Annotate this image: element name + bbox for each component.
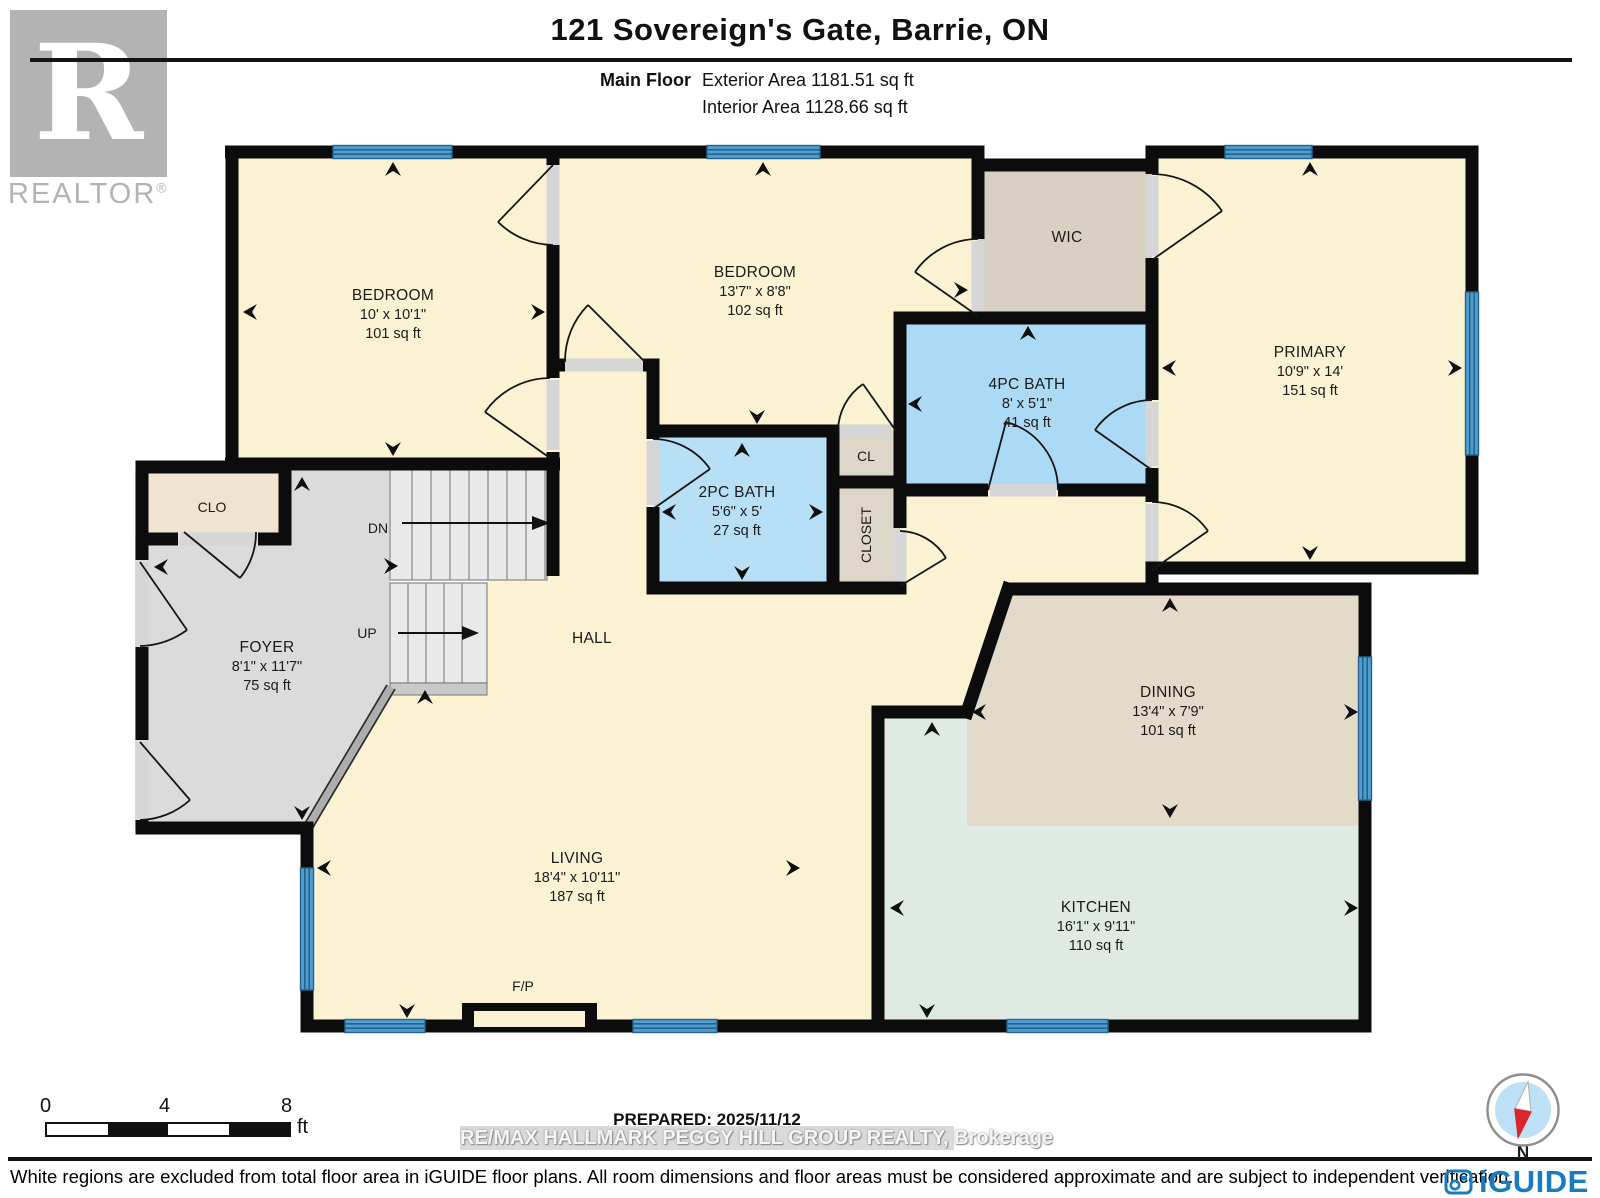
bedroom2-label: BEDROOM <box>714 264 796 281</box>
scale-unit: ft <box>297 1116 308 1139</box>
wic-label: WIC <box>1051 229 1082 246</box>
clo-label: CLO <box>198 499 227 515</box>
floorplan-drawing: BEDROOM 10' x 10'1" 101 sq ft BEDROOM 13… <box>0 0 1600 1060</box>
scale-tick-4: 4 <box>159 1095 170 1118</box>
bath2-label: 2PC BATH <box>698 484 775 501</box>
fireplace <box>462 1003 597 1027</box>
scale-segment <box>47 1124 108 1135</box>
scale-segment <box>108 1124 169 1135</box>
brokerage-watermark: RE/MAX HALLMARK PEGGY HILL GROUP REALTY,… <box>460 1126 954 1150</box>
realtor-logo-letter: R <box>34 28 144 160</box>
living-area: 187 sq ft <box>549 889 605 905</box>
bedroom1-label: BEDROOM <box>352 287 434 304</box>
bedroom1-area: 101 sq ft <box>365 326 421 342</box>
dining-area: 101 sq ft <box>1140 723 1196 739</box>
bedroom1-dims: 10' x 10'1" <box>360 307 426 323</box>
bedroom2-area: 102 sq ft <box>727 303 783 319</box>
scale-segment <box>229 1124 290 1135</box>
scale-segment <box>168 1124 229 1135</box>
iguide-wordmark: iGUIDE <box>1479 1164 1589 1198</box>
primary-dims: 10'9" x 14' <box>1277 364 1344 380</box>
foyer-label: FOYER <box>240 639 295 656</box>
foyer-dims: 8'1" x 11'7" <box>232 659 302 675</box>
iguide-logo: iGUIDE <box>1444 1164 1589 1198</box>
scale-tick-0: 0 <box>40 1095 51 1118</box>
kitchen-dims: 16'1" x 9'11" <box>1057 919 1135 935</box>
living-dims: 18'4" x 10'11" <box>534 870 621 886</box>
stairs-down-label: DN <box>368 520 388 536</box>
living-label: LIVING <box>551 850 604 867</box>
iguide-icon <box>1444 1168 1474 1196</box>
bath2-area: 27 sq ft <box>713 523 761 539</box>
fireplace-label: F/P <box>512 978 534 994</box>
disclaimer-text: White regions are excluded from total fl… <box>10 1166 1590 1188</box>
dining-label: DINING <box>1140 684 1196 701</box>
closet-label: CLOSET <box>858 507 874 563</box>
scale-bar <box>45 1122 291 1137</box>
footer-divider <box>8 1157 1592 1161</box>
stairs-up-label: UP <box>357 625 376 641</box>
bath2-dims: 5'6" x 5' <box>712 504 762 520</box>
kitchen-area: 110 sq ft <box>1069 938 1124 954</box>
realtor-logo: R <box>10 10 167 177</box>
floorplan-page: 121 Sovereign's Gate, Barrie, ON Main Fl… <box>0 0 1600 1198</box>
foyer-area: 75 sq ft <box>243 678 291 694</box>
header-divider <box>30 58 1572 62</box>
stairs-landing-strip <box>390 683 487 695</box>
kitchen-label: KITCHEN <box>1061 899 1131 916</box>
compass-north-label: N <box>1517 1143 1529 1162</box>
cl-label: CL <box>857 448 875 464</box>
bath4-dims: 8' x 5'1" <box>1002 396 1052 412</box>
dining-dims: 13'4" x 7'9" <box>1132 704 1203 720</box>
bath4-label: 4PC BATH <box>988 376 1065 393</box>
scale-tick-8: 8 <box>281 1095 292 1118</box>
bedroom2-dims: 13'7" x 8'8" <box>719 284 790 300</box>
primary-label: PRIMARY <box>1274 344 1346 361</box>
bath4-area: 41 sq ft <box>1003 415 1051 431</box>
compass: N <box>1479 1068 1567 1162</box>
primary-area: 151 sq ft <box>1282 383 1338 399</box>
hall-label: HALL <box>572 630 612 647</box>
